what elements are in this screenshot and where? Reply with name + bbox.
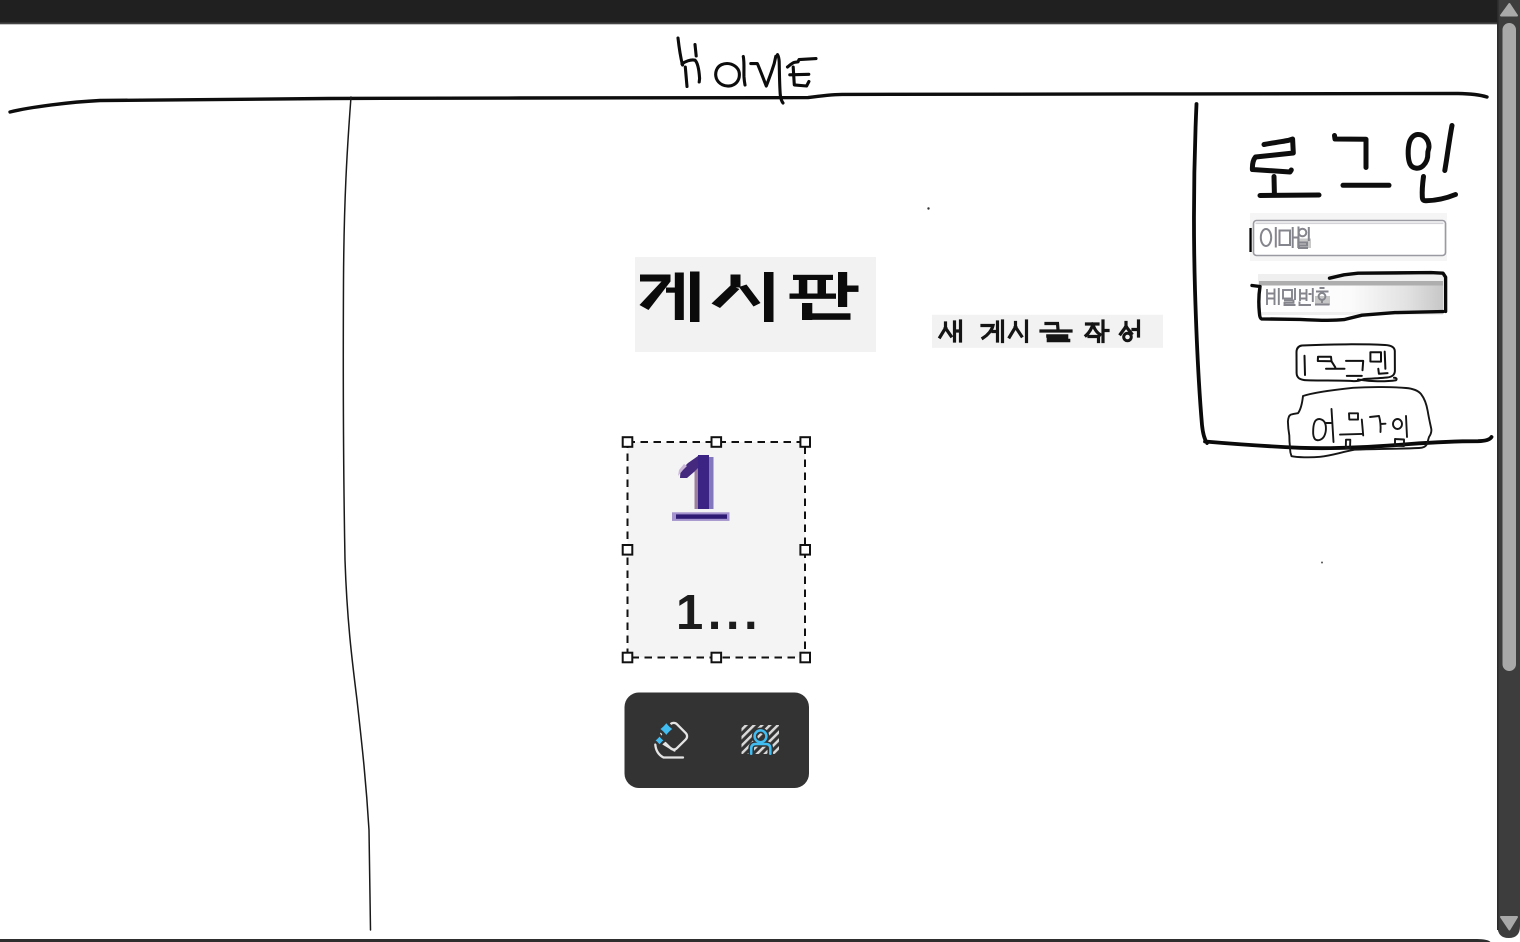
svg-text:1...: 1...: [676, 586, 762, 640]
